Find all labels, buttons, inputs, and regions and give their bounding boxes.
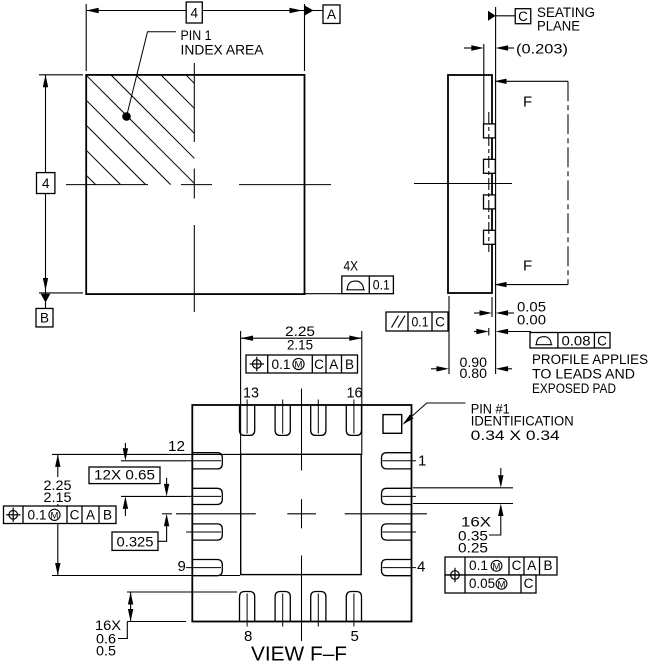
svg-text:INDEX AREA: INDEX AREA	[181, 43, 264, 58]
svg-text:A: A	[527, 558, 536, 573]
svg-text:M: M	[51, 510, 59, 521]
svg-text:0.80: 0.80	[460, 366, 488, 381]
svg-text:EXPOSED PAD: EXPOSED PAD	[532, 381, 616, 396]
svg-text:F: F	[523, 258, 532, 275]
svg-text:16: 16	[347, 385, 363, 402]
svg-text:B: B	[40, 311, 49, 326]
svg-text:F: F	[523, 94, 532, 111]
svg-text:IDENTIFICATION: IDENTIFICATION	[471, 414, 574, 429]
svg-text:C: C	[524, 576, 534, 591]
svg-text:B: B	[543, 558, 552, 573]
svg-text:13: 13	[243, 385, 259, 402]
svg-text:B: B	[345, 357, 354, 372]
svg-text:0.5: 0.5	[96, 644, 116, 659]
svg-text:0.1: 0.1	[469, 558, 488, 573]
svg-text:5: 5	[351, 628, 359, 645]
svg-text:0.1: 0.1	[272, 357, 291, 372]
svg-text:16X: 16X	[461, 515, 491, 530]
svg-text:0.1: 0.1	[28, 508, 47, 523]
svg-text:C: C	[70, 508, 80, 523]
svg-text:0.05: 0.05	[469, 576, 495, 591]
svg-text:0.1: 0.1	[412, 315, 429, 330]
svg-text:12X 0.65: 12X 0.65	[94, 468, 155, 483]
svg-text:4: 4	[42, 176, 50, 191]
svg-text:A: A	[86, 508, 95, 523]
svg-text:2.15: 2.15	[287, 338, 313, 353]
svg-text:8: 8	[244, 628, 252, 645]
svg-text:M: M	[493, 561, 501, 572]
svg-text:VIEW F–F: VIEW F–F	[251, 644, 347, 666]
svg-text:A: A	[329, 357, 338, 372]
svg-text:C: C	[518, 9, 528, 24]
svg-text:0.25: 0.25	[458, 541, 488, 556]
svg-text:4: 4	[417, 559, 425, 576]
svg-text:M: M	[295, 360, 303, 371]
svg-text:2.15: 2.15	[44, 490, 72, 505]
svg-text:9: 9	[178, 558, 186, 575]
svg-text:0.325: 0.325	[117, 535, 154, 550]
svg-text:0.00: 0.00	[517, 313, 546, 328]
svg-text:C: C	[435, 315, 445, 330]
svg-text:0.34 X 0.34: 0.34 X 0.34	[471, 428, 561, 443]
svg-text:C: C	[314, 357, 324, 372]
svg-text:B: B	[103, 508, 112, 523]
svg-text:PLANE: PLANE	[537, 19, 580, 34]
svg-text:M: M	[498, 579, 506, 590]
svg-text:C: C	[597, 334, 607, 349]
svg-text:12: 12	[168, 438, 185, 455]
svg-text:(0.203): (0.203)	[516, 42, 568, 57]
svg-text:C: C	[512, 558, 522, 573]
svg-text:4X: 4X	[344, 259, 359, 274]
svg-text:PIN 1: PIN 1	[181, 28, 212, 43]
svg-text:A: A	[327, 7, 336, 22]
svg-text:0.1: 0.1	[373, 278, 390, 293]
svg-text:0.08: 0.08	[562, 334, 591, 349]
svg-text:PROFILE APPLIES: PROFILE APPLIES	[532, 352, 648, 367]
svg-text:TO LEADS AND: TO LEADS AND	[532, 367, 635, 382]
svg-text:1: 1	[418, 453, 426, 470]
svg-text:4: 4	[190, 6, 198, 21]
